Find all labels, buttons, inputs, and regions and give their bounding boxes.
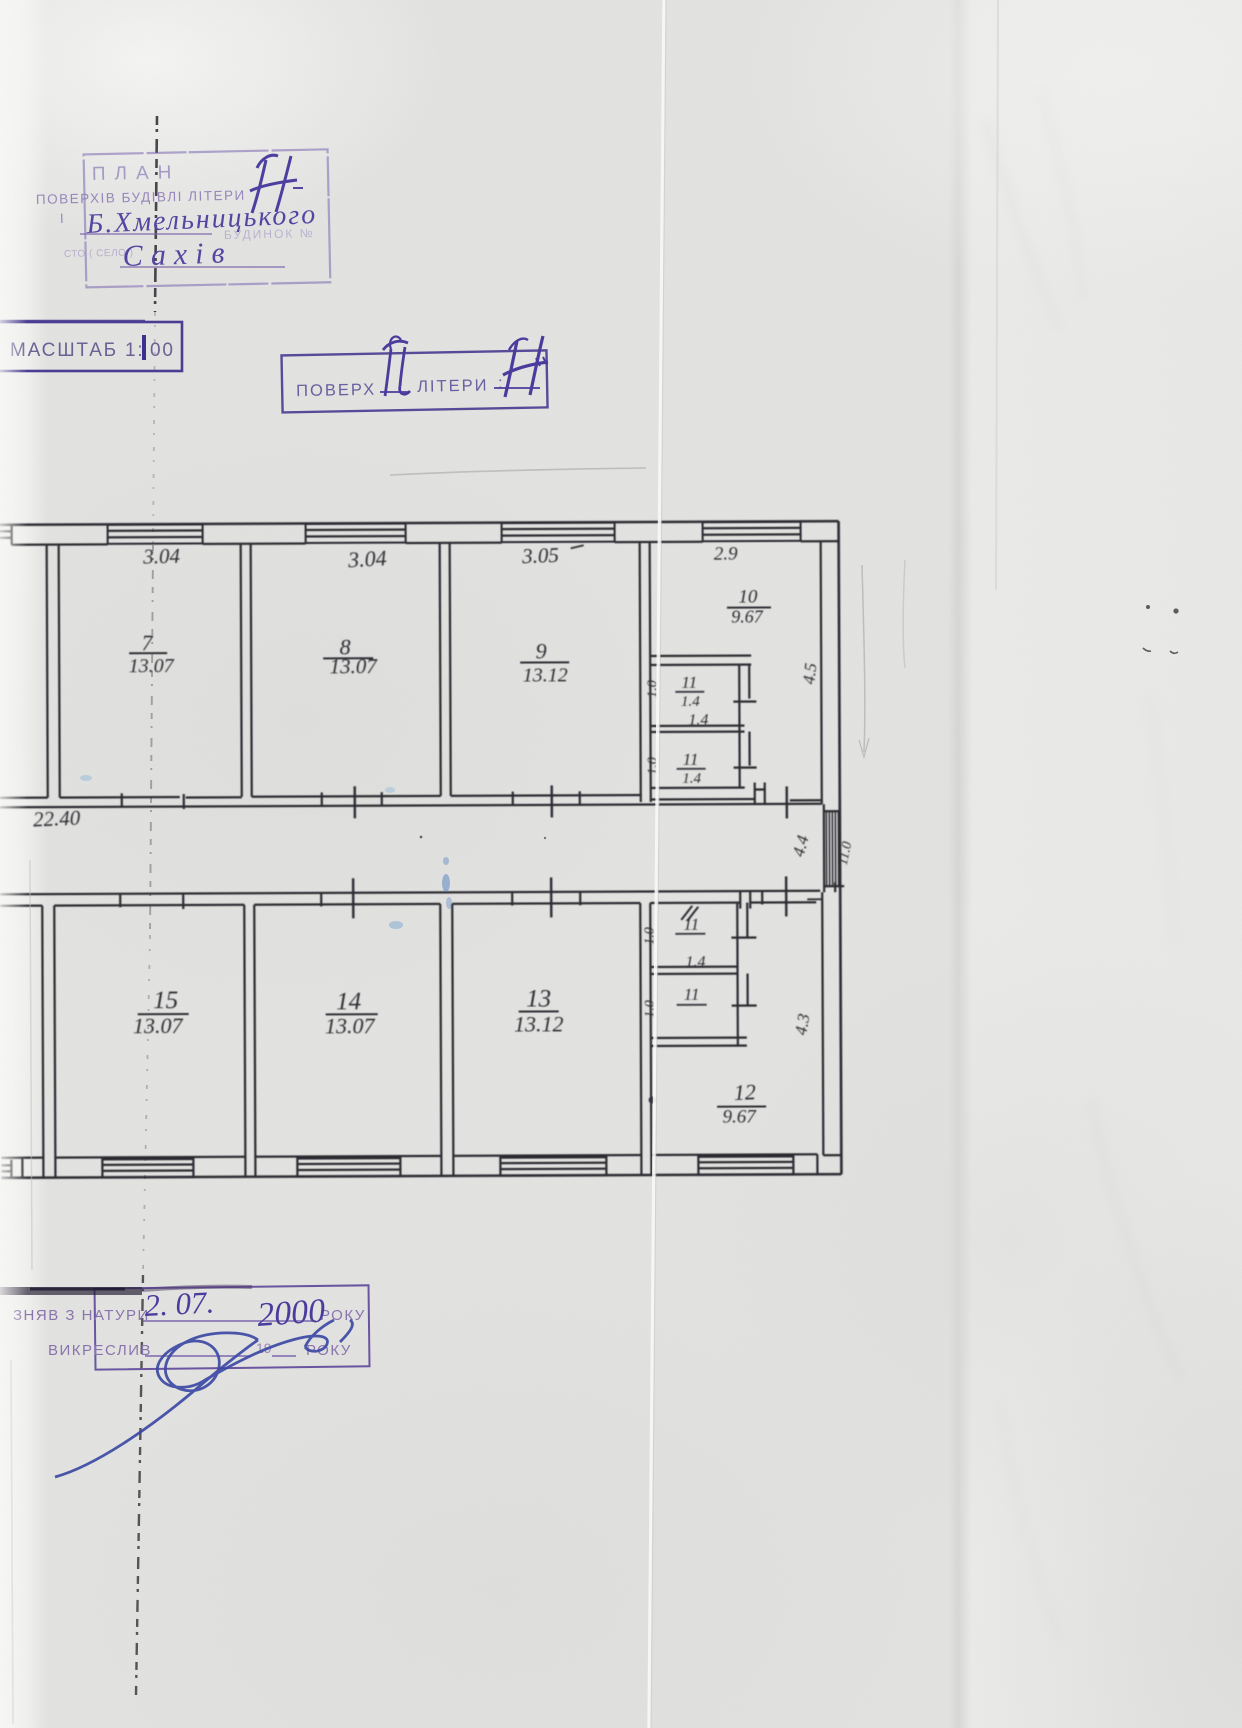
svg-text:13: 13 (526, 985, 551, 1012)
svg-text:12: 12 (733, 1079, 756, 1105)
svg-text:1.4: 1.4 (685, 954, 705, 971)
svg-text:І: І (60, 211, 64, 226)
svg-text:1.4: 1.4 (688, 712, 708, 729)
svg-text:РОКУ: РОКУ (320, 1307, 366, 1324)
svg-text:9: 9 (536, 638, 547, 663)
svg-text:9.67: 9.67 (731, 606, 764, 626)
svg-text:2000: 2000 (256, 1292, 326, 1334)
svg-text:10: 10 (738, 587, 758, 608)
svg-text::: : (498, 374, 503, 392)
svg-text:2. 07.: 2. 07. (144, 1284, 215, 1323)
svg-text:ПОВЕРХ: ПОВЕРХ (296, 381, 376, 401)
svg-text:ВИКРЕСЛИВ: ВИКРЕСЛИВ (48, 1342, 152, 1359)
svg-text:3.04: 3.04 (142, 544, 181, 569)
svg-text:4.3: 4.3 (791, 1012, 813, 1036)
svg-text:11: 11 (683, 750, 699, 769)
svg-text:ЛІТЕРИ: ЛІТЕРИ (417, 376, 489, 395)
svg-text:ПЛАН: ПЛАН (92, 162, 181, 185)
svg-text:13.12: 13.12 (514, 1011, 564, 1036)
svg-text:14: 14 (336, 988, 361, 1015)
svg-text:13.12: 13.12 (523, 664, 568, 686)
svg-text:15: 15 (153, 987, 178, 1014)
svg-text:13.07: 13.07 (133, 1013, 184, 1038)
svg-text:13.07: 13.07 (330, 654, 379, 678)
svg-text:4.5: 4.5 (799, 662, 820, 685)
svg-text:22.40: 22.40 (33, 806, 82, 832)
svg-text:11: 11 (681, 673, 697, 692)
svg-text:13.07: 13.07 (325, 1013, 376, 1038)
svg-text:1.4: 1.4 (682, 771, 701, 787)
svg-text:3.04: 3.04 (346, 545, 387, 572)
svg-text:2.9: 2.9 (714, 544, 738, 565)
svg-text:00: 00 (150, 340, 175, 361)
svg-text:11: 11 (684, 985, 700, 1004)
svg-text:11: 11 (683, 915, 699, 934)
svg-text:1.4: 1.4 (681, 694, 700, 710)
svg-text:МАСШТАБ 1:: МАСШТАБ 1: (10, 340, 144, 361)
svg-text:ЗНЯВ З НАТУРИ: ЗНЯВ З НАТУРИ (13, 1307, 150, 1324)
svg-text:9.67: 9.67 (722, 1107, 757, 1128)
svg-text:3.05: 3.05 (521, 543, 560, 568)
